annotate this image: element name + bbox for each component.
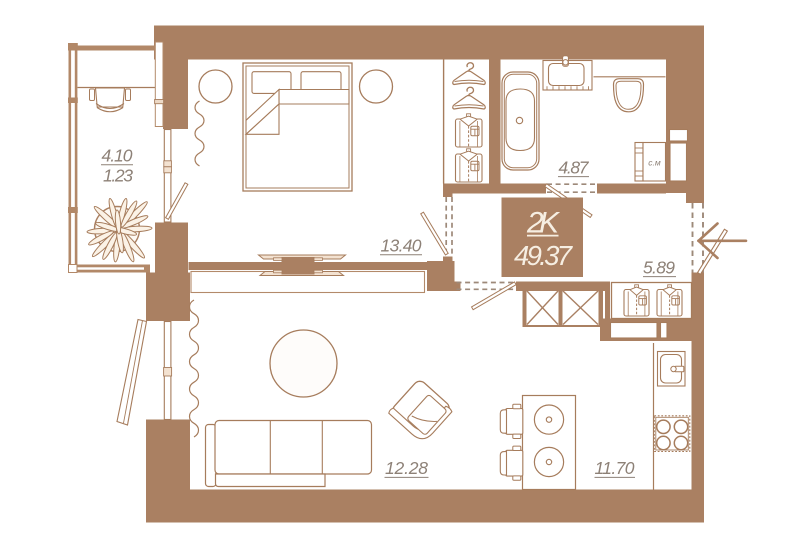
svg-text:49.37: 49.37	[514, 240, 574, 271]
svg-text:12.28: 12.28	[385, 458, 428, 478]
svg-text:с.м: с.м	[648, 158, 661, 168]
svg-text:11.70: 11.70	[595, 458, 635, 478]
svg-text:13.40: 13.40	[381, 236, 422, 256]
svg-text:2K: 2K	[526, 207, 561, 240]
svg-text:4.87: 4.87	[559, 158, 590, 178]
svg-text:4.10: 4.10	[102, 146, 133, 166]
svg-text:5.89: 5.89	[643, 258, 675, 278]
svg-text:1.23: 1.23	[103, 166, 133, 186]
